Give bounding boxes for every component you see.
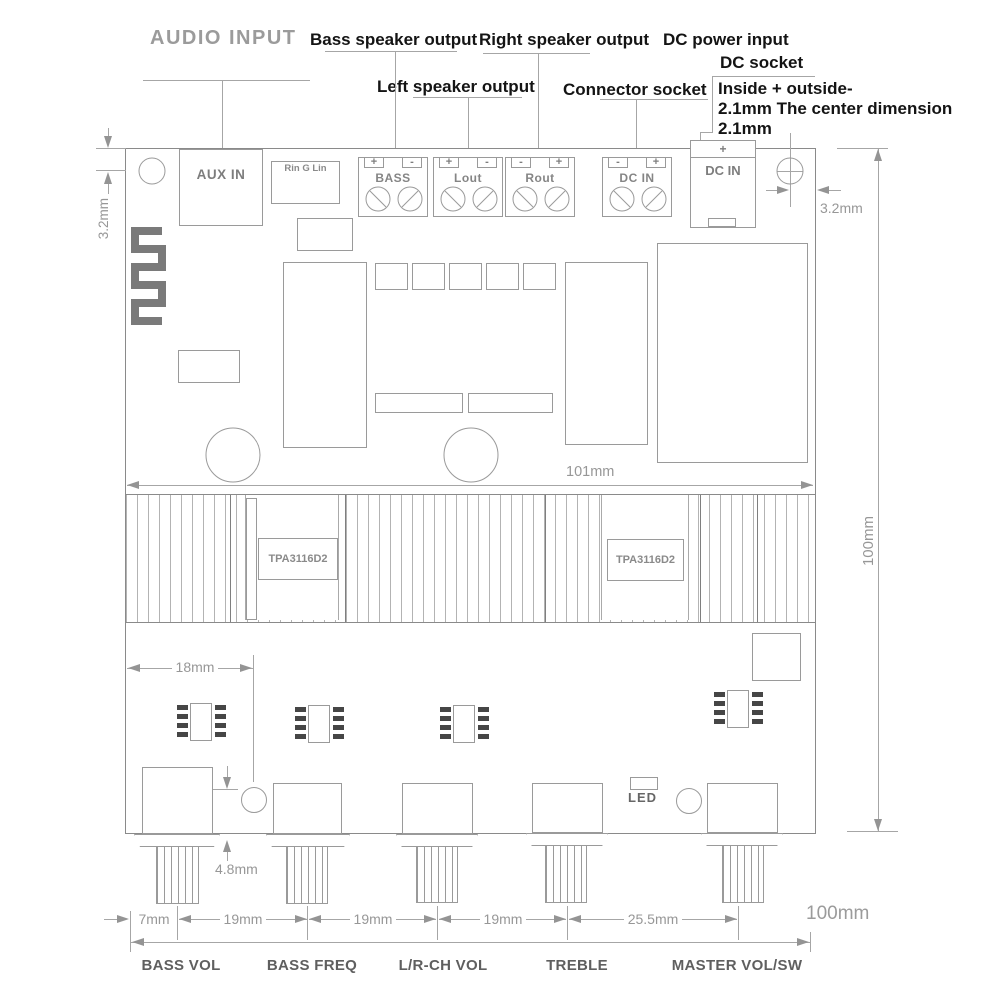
heatsink-fin-line	[700, 495, 701, 622]
arrowhead	[309, 915, 321, 923]
terminal-tab: -	[402, 157, 422, 168]
control-label-treble: TREBLE	[546, 957, 608, 974]
terminal-lout: + - Lout	[433, 157, 503, 217]
dimension-tick	[437, 906, 438, 940]
arrowhead	[725, 915, 737, 923]
heatsink-fin-line	[345, 495, 346, 622]
component-outline	[178, 350, 240, 383]
dimension-line	[108, 184, 109, 194]
pot-shaft-lr-vol	[416, 847, 458, 903]
arrowhead	[874, 149, 882, 161]
pot-nut	[266, 834, 350, 847]
leader-line	[636, 99, 637, 148]
component-outline	[468, 393, 553, 413]
mounting-hole-icon	[776, 157, 805, 186]
inductor-outline	[523, 263, 556, 290]
dim-hole-edge-left: 3.2mm	[96, 198, 111, 239]
dim-width-mid: 101mm	[566, 464, 614, 481]
pot-shaft-master-vol	[722, 846, 764, 903]
dimension-tick	[96, 170, 126, 171]
terminal-dc-in: - + DC IN	[602, 157, 672, 217]
terminal-tab: +	[439, 157, 459, 168]
label-dc-power-input: DC power input	[663, 30, 789, 50]
arrowhead	[801, 481, 813, 489]
arrowhead	[223, 840, 231, 852]
arrowhead	[104, 136, 112, 148]
arrowhead	[554, 915, 566, 923]
antenna-icon	[126, 226, 166, 326]
dim-seg-7: 7mm	[131, 911, 177, 927]
dimension-tick	[177, 906, 178, 940]
terminal-rout: - + Rout	[505, 157, 575, 217]
screw-icon	[359, 184, 429, 214]
arrowhead	[128, 664, 140, 672]
screw-icon	[434, 184, 504, 214]
control-label-lr-ch-vol: L/R-CH VOL	[399, 957, 488, 974]
leader-line	[712, 76, 815, 77]
arrowhead	[240, 664, 252, 672]
arrowhead	[179, 915, 191, 923]
terminal-tab: +	[549, 157, 569, 168]
dimension-line	[131, 942, 810, 943]
arrowhead	[104, 172, 112, 184]
label-bass-speaker-output: Bass speaker output	[310, 30, 477, 50]
dimension-tick	[253, 655, 254, 782]
pot-nut	[701, 833, 783, 846]
arrowhead	[223, 777, 231, 789]
led-label: LED	[628, 791, 657, 806]
inductor-outline	[375, 263, 408, 290]
dim-seg-19-3: 19mm	[458, 911, 548, 927]
dimension-tick	[738, 906, 739, 940]
heatsink-fin-line	[230, 495, 231, 622]
label-right-speaker-output: Right speaker output	[479, 30, 649, 50]
arrowhead	[127, 481, 139, 489]
terminal-tab: -	[608, 157, 628, 168]
terminal-label: Rout	[506, 171, 574, 185]
dc-jack-label: DC IN	[691, 163, 755, 178]
component-outline	[375, 393, 463, 413]
pot-body-lr-vol	[402, 783, 473, 834]
soic-chip	[177, 703, 226, 741]
label-dc-note-2: 2.1mm The center dimension	[718, 99, 952, 119]
rin-g-lin-label: Rin G Lin	[271, 164, 340, 175]
component-outline	[565, 262, 648, 445]
arrowhead	[424, 915, 436, 923]
arrowhead	[132, 938, 144, 946]
dimension-tick	[847, 831, 898, 832]
aux-in-jack	[179, 149, 263, 226]
dimension-line	[227, 852, 228, 861]
soic-body	[453, 705, 475, 743]
dimension-tick	[212, 789, 238, 790]
component-outline	[297, 218, 353, 251]
pot-shaft-bass-freq	[286, 847, 328, 904]
arrowhead	[874, 819, 882, 831]
arrowhead	[295, 915, 307, 923]
dim-hole-edge-right: 3.2mm	[820, 200, 863, 216]
capacitor-icon	[443, 427, 500, 484]
dimension-line	[829, 190, 841, 191]
terminal-label: Lout	[434, 171, 502, 185]
control-label-master-vol-sw: MASTER VOL/SW	[672, 957, 803, 974]
dimension-tick	[96, 148, 126, 149]
aux-in-label: AUX IN	[179, 167, 263, 183]
leader-line	[325, 51, 457, 52]
dc-jack-sign: +	[691, 141, 755, 158]
dim-pot-offset: 18mm	[150, 659, 240, 675]
soic-body	[308, 705, 330, 743]
dim-width-bottom: 100mm	[806, 903, 869, 925]
arrowhead	[797, 938, 809, 946]
heatsink-fin-line	[757, 495, 758, 622]
terminal-tab: -	[511, 157, 531, 168]
leader-line	[143, 80, 310, 81]
pot-shaft-bass-vol	[156, 847, 199, 904]
audio-input-title: AUDIO INPUT	[150, 27, 297, 50]
push-button-icon	[241, 787, 268, 814]
soic-body	[190, 703, 212, 741]
pot-body-bass-freq	[273, 783, 342, 834]
component-outline	[752, 633, 801, 681]
dc-jack-pin	[708, 218, 736, 227]
dim-seg-19-1: 19mm	[198, 911, 288, 927]
screw-icon	[603, 184, 673, 214]
component-outline	[246, 498, 257, 620]
button-icon	[676, 788, 703, 815]
inductor-outline	[486, 263, 519, 290]
label-dc-note-3: 2.1mm	[718, 119, 772, 139]
dimension-line	[127, 485, 813, 486]
pot-nut	[526, 833, 608, 846]
dimension-tick	[810, 932, 811, 952]
terminal-label: BASS	[359, 171, 427, 185]
leader-line	[468, 97, 469, 148]
arrowhead	[117, 915, 129, 923]
terminal-tab: +	[364, 157, 384, 168]
leader-line	[712, 76, 713, 133]
inductor-outline	[449, 263, 482, 290]
dimension-line	[104, 919, 118, 920]
amplifier-board-diagram: AUDIO INPUT Bass speaker output Right sp…	[0, 0, 1002, 1002]
terminal-tab: +	[646, 157, 666, 168]
dim-height-right: 100mm	[860, 516, 877, 566]
chip-label: TPA3116D2	[616, 554, 675, 566]
inductor-outline	[412, 263, 445, 290]
leader-line	[395, 51, 396, 148]
arrowhead	[777, 186, 789, 194]
leader-line	[700, 132, 713, 133]
component-outline	[283, 262, 367, 448]
control-label-bass-vol: BASS VOL	[141, 957, 220, 974]
dim-seg-25-5: 25.5mm	[608, 911, 698, 927]
soic-chip	[440, 705, 489, 743]
leader-line	[600, 99, 708, 100]
control-label-bass-freq: BASS FREQ	[267, 957, 357, 974]
terminal-bass: + - BASS	[358, 157, 428, 217]
label-dc-note-1: Inside + outside-	[718, 79, 853, 99]
terminal-label: DC IN	[603, 171, 671, 185]
tpa3116d2-chip-left: TPA3116D2	[258, 538, 338, 580]
soic-body	[727, 690, 749, 728]
dimension-tick	[307, 906, 308, 940]
dim-seg-19-2: 19mm	[328, 911, 418, 927]
soic-chip	[714, 690, 763, 728]
dimension-line	[878, 149, 879, 831]
arrowhead	[817, 186, 829, 194]
pot-nut	[134, 834, 220, 847]
leader-line	[483, 53, 590, 54]
screw-icon	[506, 184, 576, 214]
mounting-hole-icon	[138, 157, 167, 186]
pot-body-bass-vol	[142, 767, 213, 834]
leader-line	[538, 53, 539, 148]
heatsink	[125, 494, 816, 623]
pot-nut	[396, 834, 478, 847]
label-dc-socket: DC socket	[720, 53, 803, 73]
label-left-speaker-output: Left speaker output	[377, 77, 535, 97]
arrowhead	[439, 915, 451, 923]
terminal-tab: -	[477, 157, 497, 168]
led-outline	[630, 777, 658, 790]
pot-shaft-treble	[545, 846, 587, 903]
dim-button-offset: 4.8mm	[215, 861, 258, 877]
dimension-tick	[567, 906, 568, 940]
component-outline	[657, 243, 808, 463]
arrowhead	[569, 915, 581, 923]
dc-barrel-jack: + DC IN	[690, 140, 756, 228]
chip-label: TPA3116D2	[268, 553, 327, 565]
tpa3116d2-chip-right: TPA3116D2	[607, 539, 684, 581]
leader-line	[222, 80, 223, 148]
soic-chip	[295, 705, 344, 743]
heatsink-fin-line	[545, 495, 546, 622]
pot-body-treble	[532, 783, 603, 833]
pot-body-master-vol	[707, 783, 778, 833]
capacitor-icon	[205, 427, 262, 484]
label-connector-socket: Connector socket	[563, 80, 707, 100]
